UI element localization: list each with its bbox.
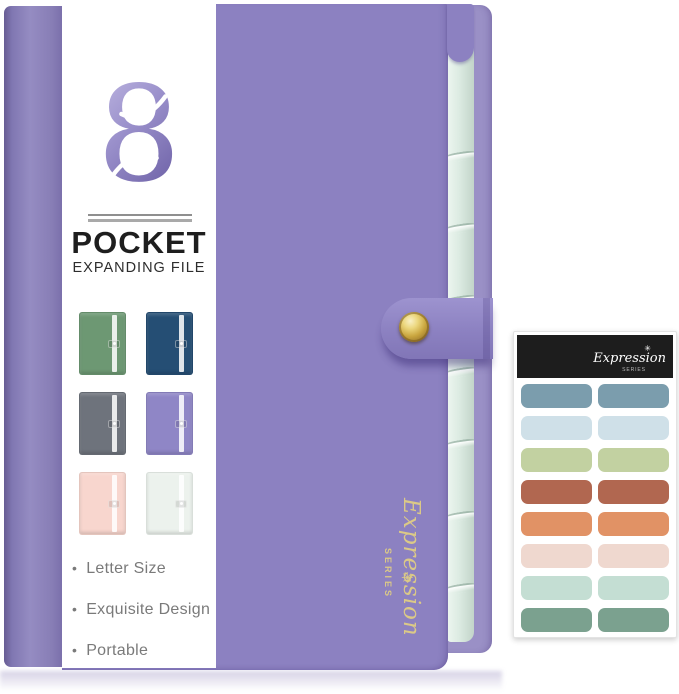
- snap-button: [399, 312, 429, 342]
- closure-strap: [381, 298, 493, 359]
- divider-rule: [88, 214, 192, 222]
- swatch-strap-tab: [175, 340, 188, 348]
- sticker-label: [521, 608, 592, 632]
- swatch-strap-tab: [108, 420, 121, 428]
- feature-item: Exquisite Design: [72, 589, 210, 630]
- sticker-label: [598, 384, 669, 408]
- sticker-label: [521, 576, 592, 600]
- sticker-label: [598, 512, 669, 536]
- product-photo: 8 POCKET EXPANDING FILE Letter SizeExqui…: [0, 0, 679, 694]
- swatch-folder-navy: [146, 312, 193, 375]
- pocket-seam: [447, 437, 474, 451]
- sticker-label: [521, 480, 592, 504]
- swatch-strap-tab: [175, 420, 188, 428]
- pocket-seam: [447, 221, 474, 235]
- feature-list: Letter SizeExquisite DesignPortable: [72, 548, 210, 671]
- number-8-glyph: 8: [97, 66, 181, 206]
- sheet-brand-series: SERIES: [622, 367, 646, 372]
- sticker-label: [598, 416, 669, 440]
- banner-subtitle: EXPANDING FILE: [62, 260, 216, 276]
- swatch-strap-tab: [108, 500, 121, 508]
- sticker-label: [598, 544, 669, 568]
- swatch-strap-tab: [108, 340, 121, 348]
- folder-top-flap: [447, 4, 474, 62]
- sticker-grid: [521, 384, 669, 632]
- pocket-seam: [447, 149, 474, 163]
- cover-brand-script: Expression: [398, 498, 424, 628]
- reflection-shadow: [0, 671, 502, 694]
- swatch-folder-pink: [79, 472, 126, 535]
- sticker-sheet: ✳ Expression SERIES: [513, 331, 677, 638]
- swatch-folder-gray: [79, 392, 126, 455]
- folder-spine: [4, 6, 62, 667]
- swatch-folder-mint: [146, 472, 193, 535]
- sticker-label: [598, 576, 669, 600]
- color-swatch-grid: [79, 312, 193, 535]
- feature-item: Portable: [72, 630, 210, 671]
- sticker-label: [598, 608, 669, 632]
- swatch-folder-purple: [146, 392, 193, 455]
- packaging-banner: 8 POCKET EXPANDING FILE Letter SizeExqui…: [62, 4, 216, 668]
- sticker-label: [598, 448, 669, 472]
- swatch-strap-tab: [175, 500, 188, 508]
- star-icon: ✳: [401, 569, 414, 587]
- pocket-seam: [447, 509, 474, 523]
- sticker-label: [521, 448, 592, 472]
- banner-title: POCKET: [62, 225, 216, 261]
- number-8-logo: 8: [95, 66, 183, 206]
- pocket-seam: [447, 365, 474, 379]
- feature-item: Letter Size: [72, 548, 210, 589]
- pocket-seam: [447, 581, 474, 595]
- sticker-sheet-header: ✳ Expression SERIES: [517, 335, 673, 378]
- cover-brand-series: SERIES: [383, 548, 393, 599]
- sticker-label: [521, 544, 592, 568]
- sheet-brand-script: Expression: [593, 351, 666, 366]
- sticker-label: [521, 416, 592, 440]
- sticker-label: [521, 512, 592, 536]
- swatch-folder-green: [79, 312, 126, 375]
- sticker-label: [598, 480, 669, 504]
- sticker-label: [521, 384, 592, 408]
